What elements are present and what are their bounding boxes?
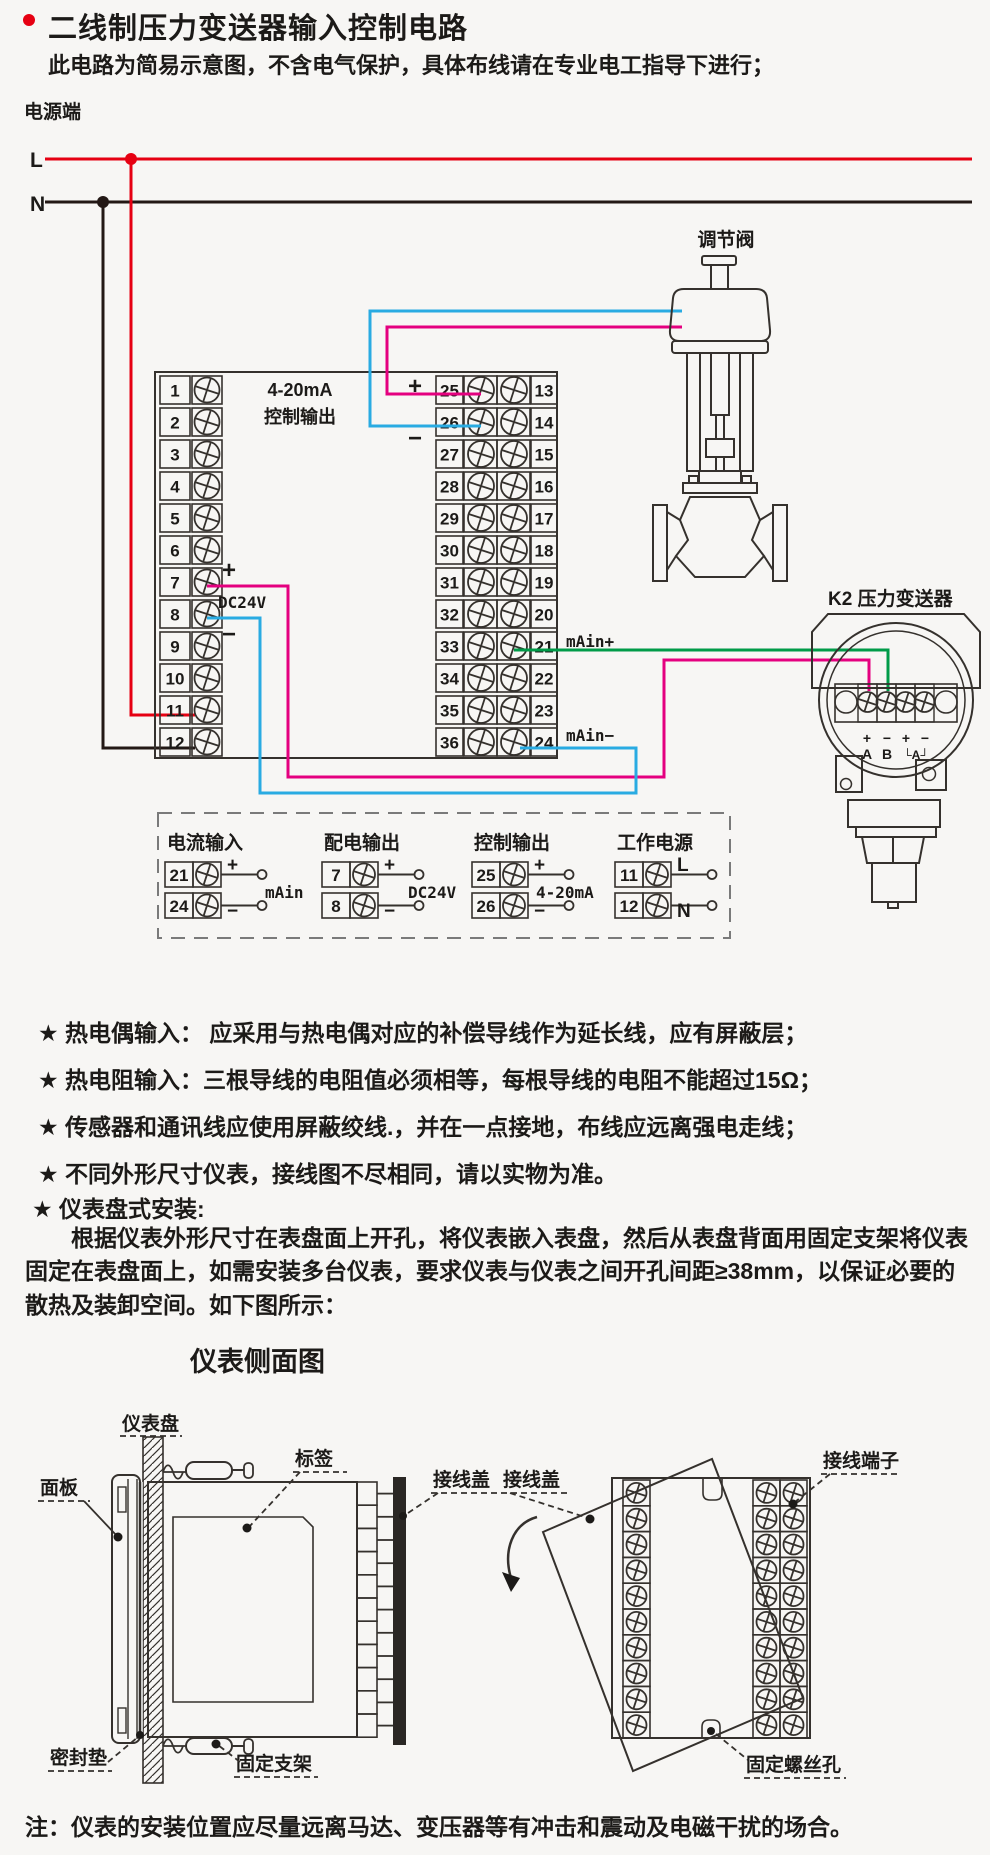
terminal-screw-icon xyxy=(191,534,223,566)
bracket-label: 固定支架 xyxy=(236,1752,312,1775)
seal-label: 密封垫 xyxy=(50,1746,107,1769)
terminal-number: 32 xyxy=(440,606,459,625)
terminal-number: 21 xyxy=(170,866,189,885)
terminal-number: 25 xyxy=(440,382,459,401)
legend-group: 控制输出25+26−4-20mA xyxy=(472,831,594,922)
main-minus-label: mAin− xyxy=(566,726,615,745)
terminal-number: 7 xyxy=(170,574,179,593)
terminal-screw-icon xyxy=(191,406,223,438)
terminal-screw-icon xyxy=(498,374,531,407)
terminal-number: 4 xyxy=(170,478,180,497)
xmtr-ab-bracket: └A┘ xyxy=(903,748,929,762)
terminal-number: 24 xyxy=(535,734,554,753)
legend-group: 配电输出7+8−DC24V xyxy=(322,831,457,922)
legend-sign: L xyxy=(677,855,689,876)
legend-group-title: 电流输入 xyxy=(167,831,243,854)
terminal-screw-icon xyxy=(191,694,223,726)
terminal-number: 11 xyxy=(166,702,184,721)
terminal-screw-icon xyxy=(191,374,223,406)
terminal-screw-icon xyxy=(465,694,498,727)
front-panel-label: 面板 xyxy=(40,1476,79,1499)
side-view-title: 仪表侧面图 xyxy=(190,1340,325,1379)
note-panel-mount: ★ 仪表盘式安装: xyxy=(32,1190,205,1224)
installation-diagram: 仪表盘 面板 标签 接线盖 密封垫 固定支架 xyxy=(0,1400,990,1800)
terminal-screw-icon xyxy=(498,662,531,695)
terminal-screw-icon xyxy=(465,374,498,407)
terminal-number: 26 xyxy=(477,897,496,916)
terminal-number: 19 xyxy=(535,574,554,593)
terminal-screw-icon xyxy=(498,406,531,439)
terminal-number: 34 xyxy=(440,670,459,689)
legend-group-title: 工作电源 xyxy=(617,831,693,854)
valve-label: 调节阀 xyxy=(697,228,754,251)
terminal-screw-icon xyxy=(754,1661,779,1686)
legend-group-title: 控制输出 xyxy=(474,831,550,854)
legend-groups: 电流输入21+24−mAin配电输出7+8−DC24V控制输出25+26−4-2… xyxy=(165,831,717,922)
rear-strip-left xyxy=(623,1480,650,1738)
terminal-number: 28 xyxy=(440,478,459,497)
install-paragraph: 根据仪表外形尺寸在表盘面上开孔，将仪表嵌入表盘，然后从表盘背面用固定支架将仪表固… xyxy=(25,1222,970,1322)
terminal-screw-icon xyxy=(643,861,671,889)
note-thermocouple: ★ 热电偶输入： 应采用与热电偶对应的补偿导线作为延长线，应有屏蔽层； xyxy=(38,1014,807,1048)
terminal-number: 27 xyxy=(440,446,459,465)
cover-right-label: 接线盖 xyxy=(503,1468,560,1491)
terminal-screw-icon xyxy=(498,726,531,759)
terminal-screw-icon xyxy=(754,1506,779,1531)
terminal-number: 22 xyxy=(535,670,554,689)
terminal-number: 23 xyxy=(535,702,554,721)
terminal-screw-icon xyxy=(624,1635,649,1660)
terminal-screw-icon xyxy=(465,502,498,535)
terminal-screw-icon xyxy=(754,1532,779,1557)
terminal-screw-icon xyxy=(643,892,671,920)
terminal-screw-icon xyxy=(191,630,223,662)
terminal-number: 6 xyxy=(170,542,179,561)
rotate-arrowhead xyxy=(502,1572,520,1592)
terminal-screw-icon xyxy=(754,1687,779,1712)
terminal-number: 12 xyxy=(620,897,639,916)
footer-note: 注：仪表的安装位置应尽量远离马达、变压器等有冲击和震动及电磁干扰的场合。 xyxy=(25,1808,853,1842)
terminal-number: 14 xyxy=(535,414,554,433)
legend-sign: N xyxy=(677,901,691,922)
screw-hole-label: 固定螺丝孔 xyxy=(746,1753,841,1776)
terminal-screw-icon xyxy=(465,406,498,439)
power-terminal-label: 电源端 xyxy=(24,100,81,123)
legend-group: 电流输入21+24−mAin xyxy=(165,831,304,922)
terminal-screw-icon xyxy=(781,1558,806,1583)
live-label: L xyxy=(30,149,43,172)
tag-label: 标签 xyxy=(295,1447,334,1470)
terminal-screw-icon xyxy=(754,1609,779,1634)
terminal-screw-icon xyxy=(754,1712,779,1737)
terminal-screw-icon xyxy=(754,1480,779,1505)
terminal-screw-icon xyxy=(498,534,531,567)
instrument-body xyxy=(148,1482,357,1737)
panel-board-label: 仪表盘 xyxy=(121,1412,179,1435)
terminal-number: 5 xyxy=(170,510,179,529)
terminal-number: 26 xyxy=(440,414,459,433)
terminal-strip-left: 123456789101112 xyxy=(160,374,223,758)
rear-terminal-cells xyxy=(357,1482,393,1737)
terminal-screw-icon xyxy=(465,438,498,471)
terminal-screw-icon xyxy=(191,470,223,502)
terminal-screw-icon xyxy=(465,598,498,631)
control-output-label-1: 4-20mA xyxy=(267,380,332,400)
neutral-label: N xyxy=(30,193,45,216)
terminal-number: 2 xyxy=(170,414,179,433)
terminal-screw-icon xyxy=(781,1712,806,1737)
front-bezel xyxy=(112,1475,140,1743)
legend-signal-label: 4-20mA xyxy=(536,883,594,902)
terminal-screw-icon xyxy=(754,1635,779,1660)
terminal-screw-icon xyxy=(465,566,498,599)
terminal-number: 13 xyxy=(535,382,554,401)
legend-sign: + xyxy=(384,855,395,876)
terminal-screw-icon xyxy=(624,1687,649,1712)
terminal-number: 35 xyxy=(440,702,459,721)
legend-sign: − xyxy=(534,901,545,922)
terminal-screw-icon xyxy=(498,502,531,535)
transmitter-label: K2 压力变送器 xyxy=(828,587,954,610)
terminal-screw-icon xyxy=(465,534,498,567)
terminal-screw-icon xyxy=(498,566,531,599)
terminal-screw-icon xyxy=(465,726,498,759)
terminal-screw-icon xyxy=(500,861,528,889)
terminal-screw-icon xyxy=(781,1532,806,1557)
terminal-screw-icon xyxy=(465,470,498,503)
terminal-screw-icon xyxy=(465,630,498,663)
wiring-diagram: 电源端 L N 123456789101112 2513261427152816… xyxy=(0,0,990,965)
terminal-screw-icon xyxy=(781,1609,806,1634)
terminal-number: 31 xyxy=(440,574,459,593)
dc24v-label: DC24V xyxy=(218,593,267,612)
cover-left-label: 接线盖 xyxy=(433,1468,490,1491)
dc-minus-label: − xyxy=(222,621,236,648)
xmtr-sign-3: + xyxy=(902,730,910,746)
terminal-screw-icon xyxy=(191,502,223,534)
terminal-screw-icon xyxy=(624,1609,649,1634)
legend-sign: + xyxy=(534,855,545,876)
panel-wall xyxy=(143,1437,163,1783)
legend-sign: − xyxy=(384,901,395,922)
terminal-screw-icon xyxy=(624,1558,649,1583)
legend-sign: + xyxy=(227,855,238,876)
terminal-number: 17 xyxy=(535,510,554,529)
terminal-screw-icon xyxy=(498,598,531,631)
terminal-screw-icon xyxy=(191,438,223,470)
terminal-screw-icon xyxy=(624,1480,649,1505)
legend-group: 工作电源11L12N xyxy=(615,831,717,922)
terminal-strip-right: 2513261427152816291730183119322033213422… xyxy=(436,374,557,759)
note-shielding: ★ 传感器和通讯线应使用屏蔽绞线.，并在一点接地，布线应远离强电走线； xyxy=(38,1108,807,1142)
legend-signal-label: mAin xyxy=(265,883,304,902)
terminal-screw-icon xyxy=(624,1506,649,1531)
terminal-screw-icon xyxy=(498,470,531,503)
terminal-screw-icon xyxy=(350,892,378,920)
main-plus-label: mAin+ xyxy=(566,632,615,651)
terminal-screw-icon xyxy=(191,662,223,694)
terminal-screw-icon xyxy=(498,438,531,471)
dc-plus-label: + xyxy=(222,557,236,584)
xmtr-sign-1: + xyxy=(863,730,871,746)
terminal-number: 25 xyxy=(477,866,496,885)
control-output-label-2: 控制输出 xyxy=(264,406,336,427)
terminal-screw-icon xyxy=(624,1532,649,1557)
terminal-number: 33 xyxy=(440,638,459,657)
terminal-number: 24 xyxy=(170,897,189,916)
terminal-screw-icon xyxy=(624,1712,649,1737)
terminal-number: 18 xyxy=(535,542,554,561)
terminal-number: 3 xyxy=(170,446,179,465)
tag-area xyxy=(173,1517,313,1702)
terminal-screw-icon xyxy=(500,892,528,920)
terminal-screw-icon xyxy=(624,1583,649,1608)
ctrl-minus-label: − xyxy=(408,425,422,452)
terminal-number: 30 xyxy=(440,542,459,561)
note-rtd: ★ 热电阻输入：三根导线的电阻值必须相等，每根导线的电阻不能超过15Ω； xyxy=(38,1061,822,1095)
terminal-screw-icon xyxy=(498,630,531,663)
xmtr-b-label: B xyxy=(882,746,892,762)
terminal-number: 20 xyxy=(535,606,554,625)
neutral-drop-wire xyxy=(103,202,195,748)
terminal-number: 10 xyxy=(166,670,185,689)
terminal-number: 21 xyxy=(535,638,554,657)
side-view-drawing xyxy=(112,1437,406,1783)
terminal-number: 7 xyxy=(331,866,340,885)
terminal-number: 8 xyxy=(331,897,340,916)
terminal-number: 29 xyxy=(440,510,459,529)
rotate-arrow xyxy=(508,1517,537,1578)
terminal-block-label: 接线端子 xyxy=(823,1449,899,1472)
terminal-number: 8 xyxy=(170,606,179,625)
legend-sign: − xyxy=(227,901,238,922)
transmitter-drawing xyxy=(812,614,980,908)
terminal-number: 11 xyxy=(620,866,638,885)
terminal-number: 15 xyxy=(535,446,554,465)
legend-signal-label: DC24V xyxy=(408,883,457,902)
terminal-screw-icon xyxy=(193,861,221,889)
xmtr-a-label: A xyxy=(862,746,872,762)
terminal-screw-icon xyxy=(781,1583,806,1608)
terminal-number: 16 xyxy=(535,478,554,497)
terminal-screw-icon xyxy=(781,1506,806,1531)
note-diagram-varies: ★ 不同外形尺寸仪表，接线图不尽相同，请以实物为准。 xyxy=(38,1155,617,1189)
terminal-screw-icon xyxy=(193,892,221,920)
control-valve-drawing xyxy=(653,256,787,581)
terminal-screw-icon xyxy=(498,694,531,727)
terminal-screw-icon xyxy=(350,861,378,889)
ctrl-plus-label: + xyxy=(408,373,422,400)
terminal-screw-icon xyxy=(465,662,498,695)
terminal-number: 1 xyxy=(170,382,179,401)
terminal-number: 9 xyxy=(170,638,179,657)
terminal-screw-icon xyxy=(624,1661,649,1686)
xmtr-sign-4: − xyxy=(921,730,929,746)
xmtr-sign-2: − xyxy=(883,730,891,746)
legend-group-title: 配电输出 xyxy=(324,831,400,854)
terminal-number: 36 xyxy=(440,734,459,753)
terminal-number: 12 xyxy=(166,734,185,753)
manual-page: 二线制压力变送器输入控制电路 此电路为简易示意图，不含电气保护，具体布线请在专业… xyxy=(0,0,990,1855)
terminal-screw-icon xyxy=(191,726,223,758)
